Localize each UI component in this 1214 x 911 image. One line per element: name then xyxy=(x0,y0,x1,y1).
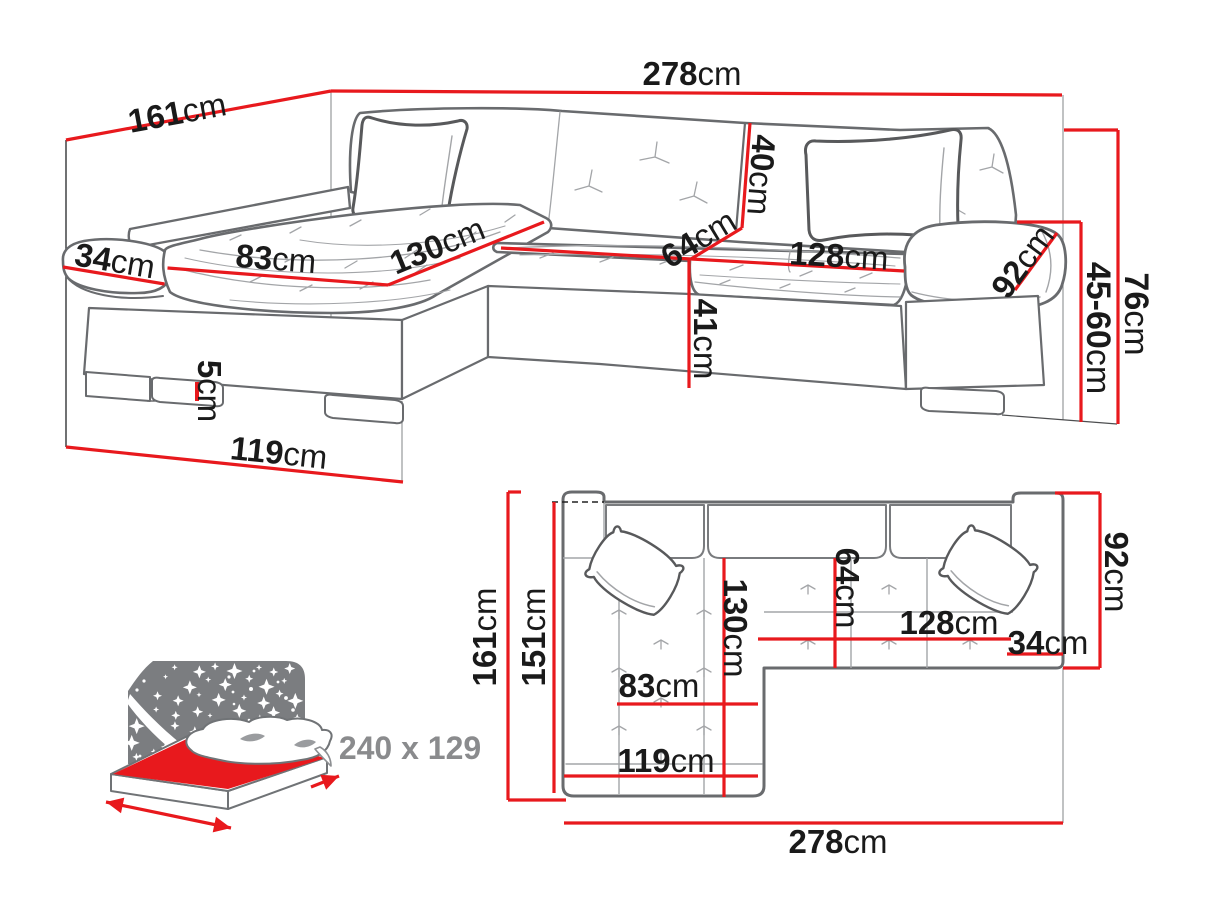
svg-text:278cm: 278cm xyxy=(788,823,887,860)
svg-text:130cm: 130cm xyxy=(718,578,755,677)
svg-text:76cm: 76cm xyxy=(1117,272,1155,355)
svg-text:128cm: 128cm xyxy=(789,234,890,276)
svg-text:278cm: 278cm xyxy=(642,55,741,92)
svg-text:83cm: 83cm xyxy=(234,236,317,279)
svg-text:40cm: 40cm xyxy=(741,133,784,216)
svg-text:83cm: 83cm xyxy=(619,667,700,704)
svg-text:41cm: 41cm xyxy=(688,299,725,380)
svg-text:151cm: 151cm xyxy=(515,587,552,686)
svg-text:45-60cm: 45-60cm xyxy=(1079,262,1117,394)
svg-text:161cm: 161cm xyxy=(466,587,503,686)
svg-text:119cm: 119cm xyxy=(617,742,714,779)
svg-text:5cm: 5cm xyxy=(192,360,229,422)
svg-text:128cm: 128cm xyxy=(899,604,998,641)
svg-text:64cm: 64cm xyxy=(830,548,867,629)
svg-text:92cm: 92cm xyxy=(1099,532,1136,613)
svg-text:34cm: 34cm xyxy=(1008,624,1089,661)
svg-text:240 x 129: 240 x 129 xyxy=(339,730,481,766)
